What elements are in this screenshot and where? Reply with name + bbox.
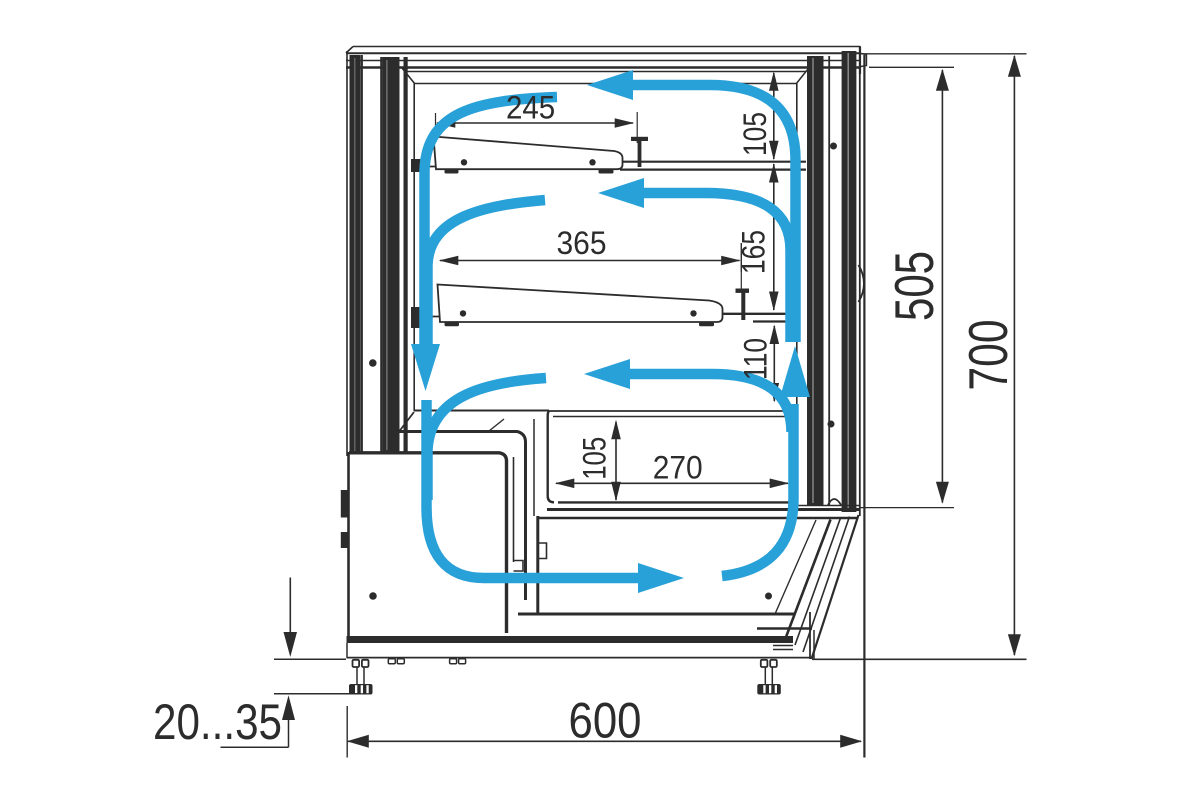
- svg-text:110: 110: [738, 338, 774, 380]
- svg-text:165: 165: [736, 230, 772, 274]
- svg-text:105: 105: [576, 437, 612, 480]
- svg-text:600: 600: [569, 693, 642, 749]
- svg-text:270: 270: [653, 450, 703, 486]
- svg-text:20...35: 20...35: [153, 694, 282, 750]
- svg-text:505: 505: [883, 251, 945, 321]
- svg-text:365: 365: [557, 225, 607, 261]
- svg-text:245: 245: [506, 90, 555, 126]
- svg-text:105: 105: [737, 112, 773, 156]
- svg-text:700: 700: [957, 320, 1019, 391]
